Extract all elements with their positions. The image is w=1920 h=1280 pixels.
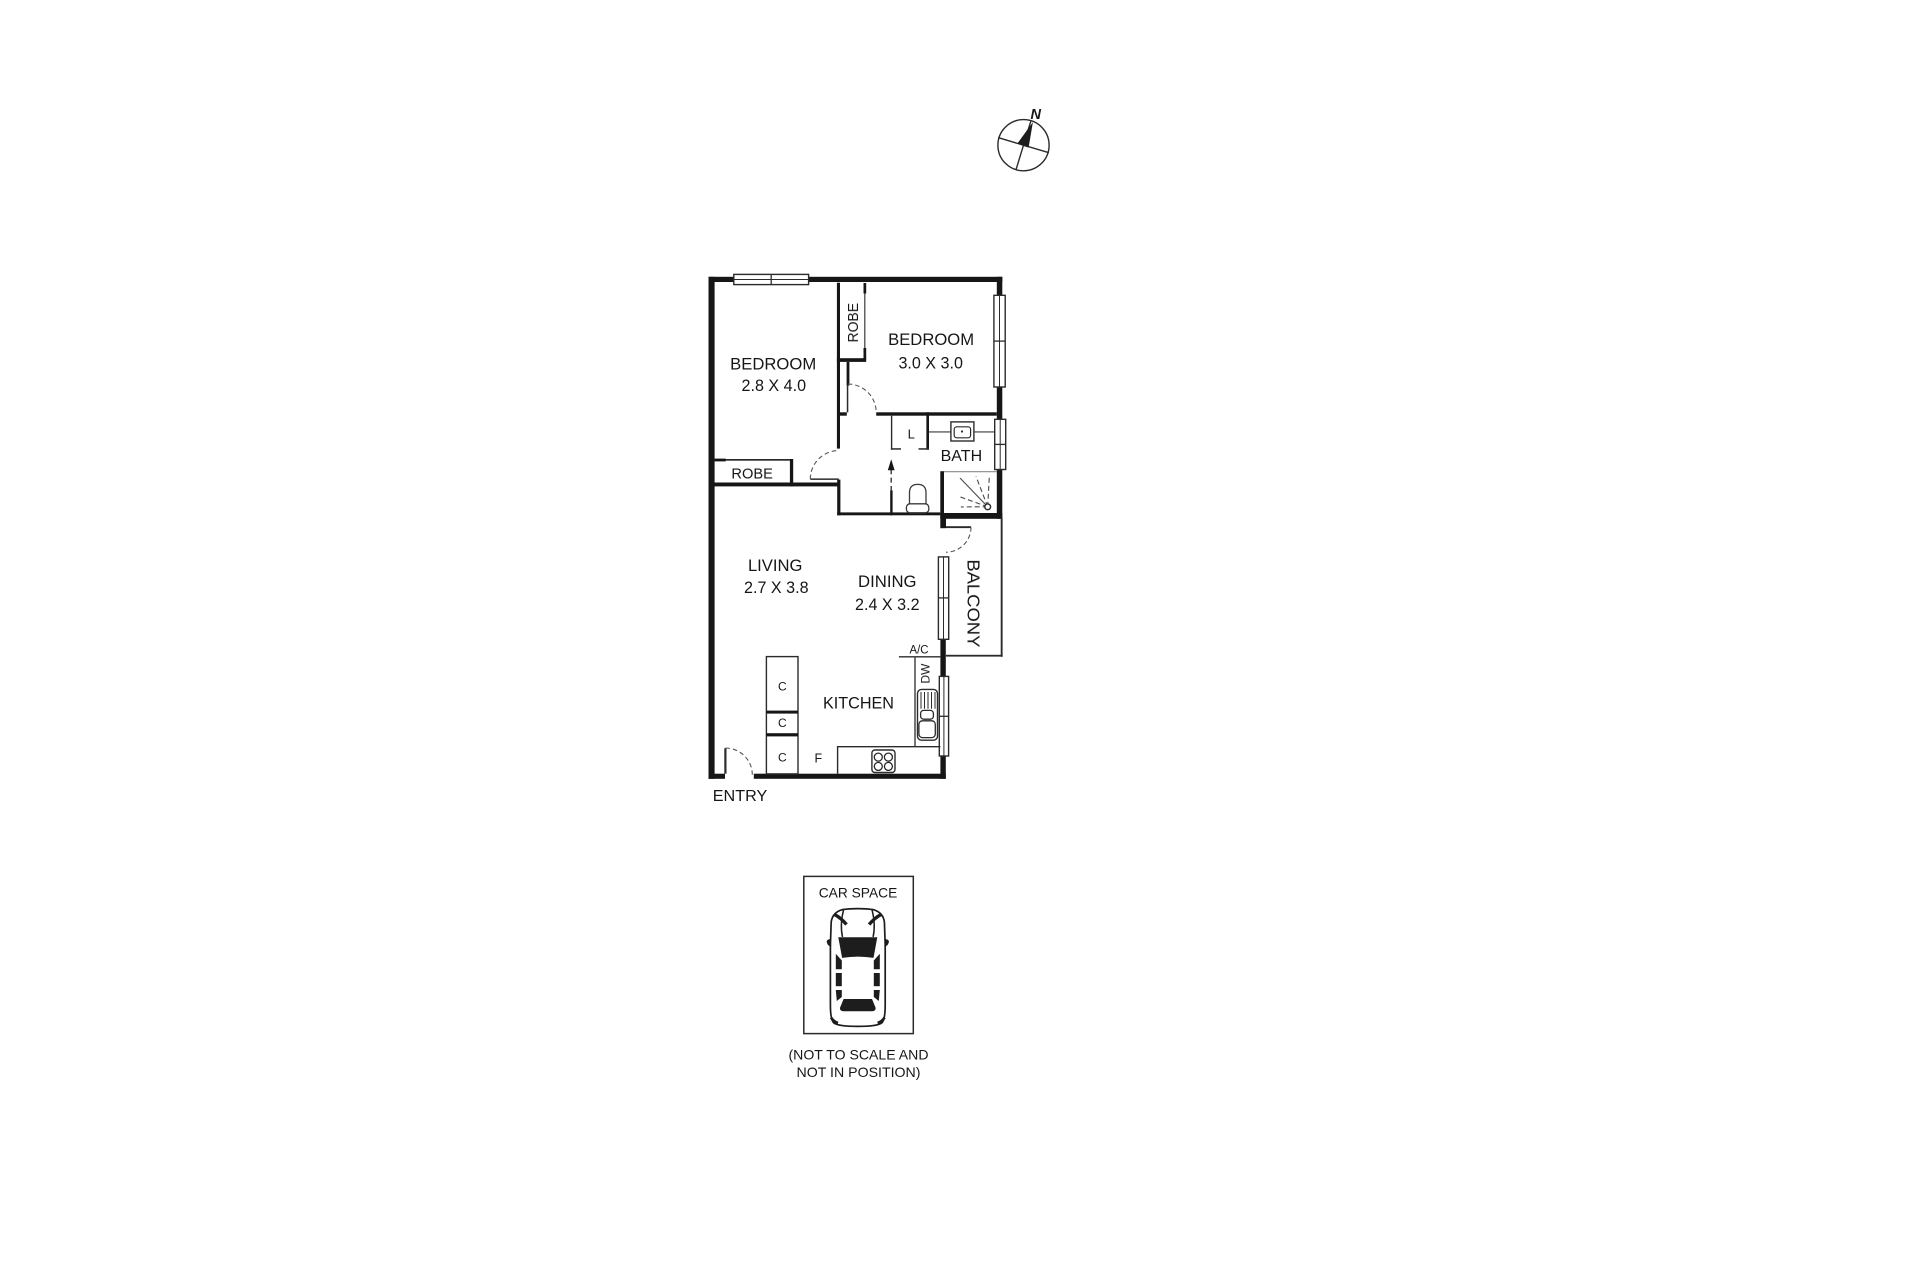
svg-text:(NOT TO SCALE AND: (NOT TO SCALE AND <box>789 1046 929 1062</box>
svg-text:2.8 X 4.0: 2.8 X 4.0 <box>742 376 807 395</box>
svg-text:DW: DW <box>921 663 933 683</box>
svg-text:BEDROOM: BEDROOM <box>730 355 816 374</box>
svg-text:ROBE: ROBE <box>731 467 773 483</box>
svg-text:C: C <box>778 751 787 765</box>
svg-text:BALCONY: BALCONY <box>964 559 984 647</box>
svg-text:KITCHEN: KITCHEN <box>823 694 894 713</box>
svg-text:A/C: A/C <box>910 644 929 656</box>
svg-text:N: N <box>1031 107 1042 123</box>
svg-text:C: C <box>778 680 787 694</box>
svg-text:ENTRY: ENTRY <box>713 788 768 805</box>
svg-text:C: C <box>778 716 787 730</box>
svg-text:2.7 X 3.8: 2.7 X 3.8 <box>744 578 809 597</box>
svg-text:NOT IN POSITION): NOT IN POSITION) <box>797 1064 921 1080</box>
svg-text:BATH: BATH <box>941 448 983 465</box>
svg-text:DINING: DINING <box>858 572 917 591</box>
svg-text:ROBE: ROBE <box>846 303 862 343</box>
svg-text:CAR SPACE: CAR SPACE <box>819 885 898 901</box>
svg-text:BEDROOM: BEDROOM <box>888 330 974 349</box>
svg-text:3.0 X 3.0: 3.0 X 3.0 <box>898 354 963 373</box>
svg-text:L: L <box>908 426 915 441</box>
svg-text:2.4 X 3.2: 2.4 X 3.2 <box>855 595 920 614</box>
svg-text:F: F <box>814 752 822 766</box>
svg-text:LIVING: LIVING <box>748 556 803 575</box>
